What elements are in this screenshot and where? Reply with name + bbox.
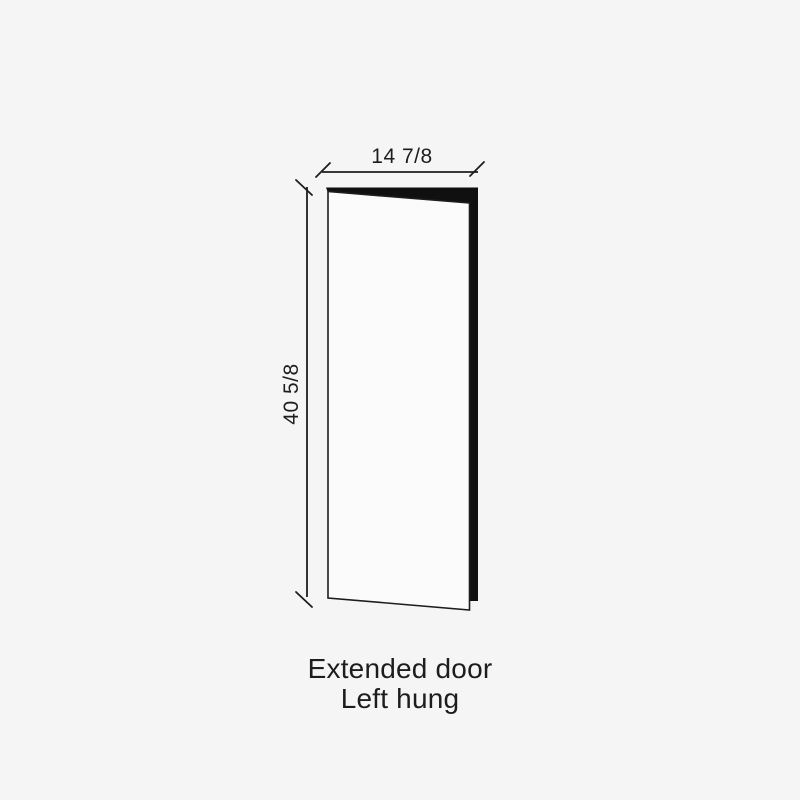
height-dimension-label: 40 5/8 [281,363,303,424]
width-dimension-label: 14 7/8 [342,146,462,168]
caption-line-1: Extended door [0,654,800,684]
door-face [328,192,470,611]
caption-line-2: Left hung [0,684,800,714]
height-dimension-tick-top [296,180,312,195]
width-dimension-tick-right [470,162,484,176]
diagram-canvas: 14 7/8 40 5/8 Extended door Left hung [0,0,800,800]
height-dimension-tick-bottom [296,592,312,607]
drawing-caption: Extended door Left hung [0,654,800,714]
width-dimension-tick-left [316,163,330,177]
